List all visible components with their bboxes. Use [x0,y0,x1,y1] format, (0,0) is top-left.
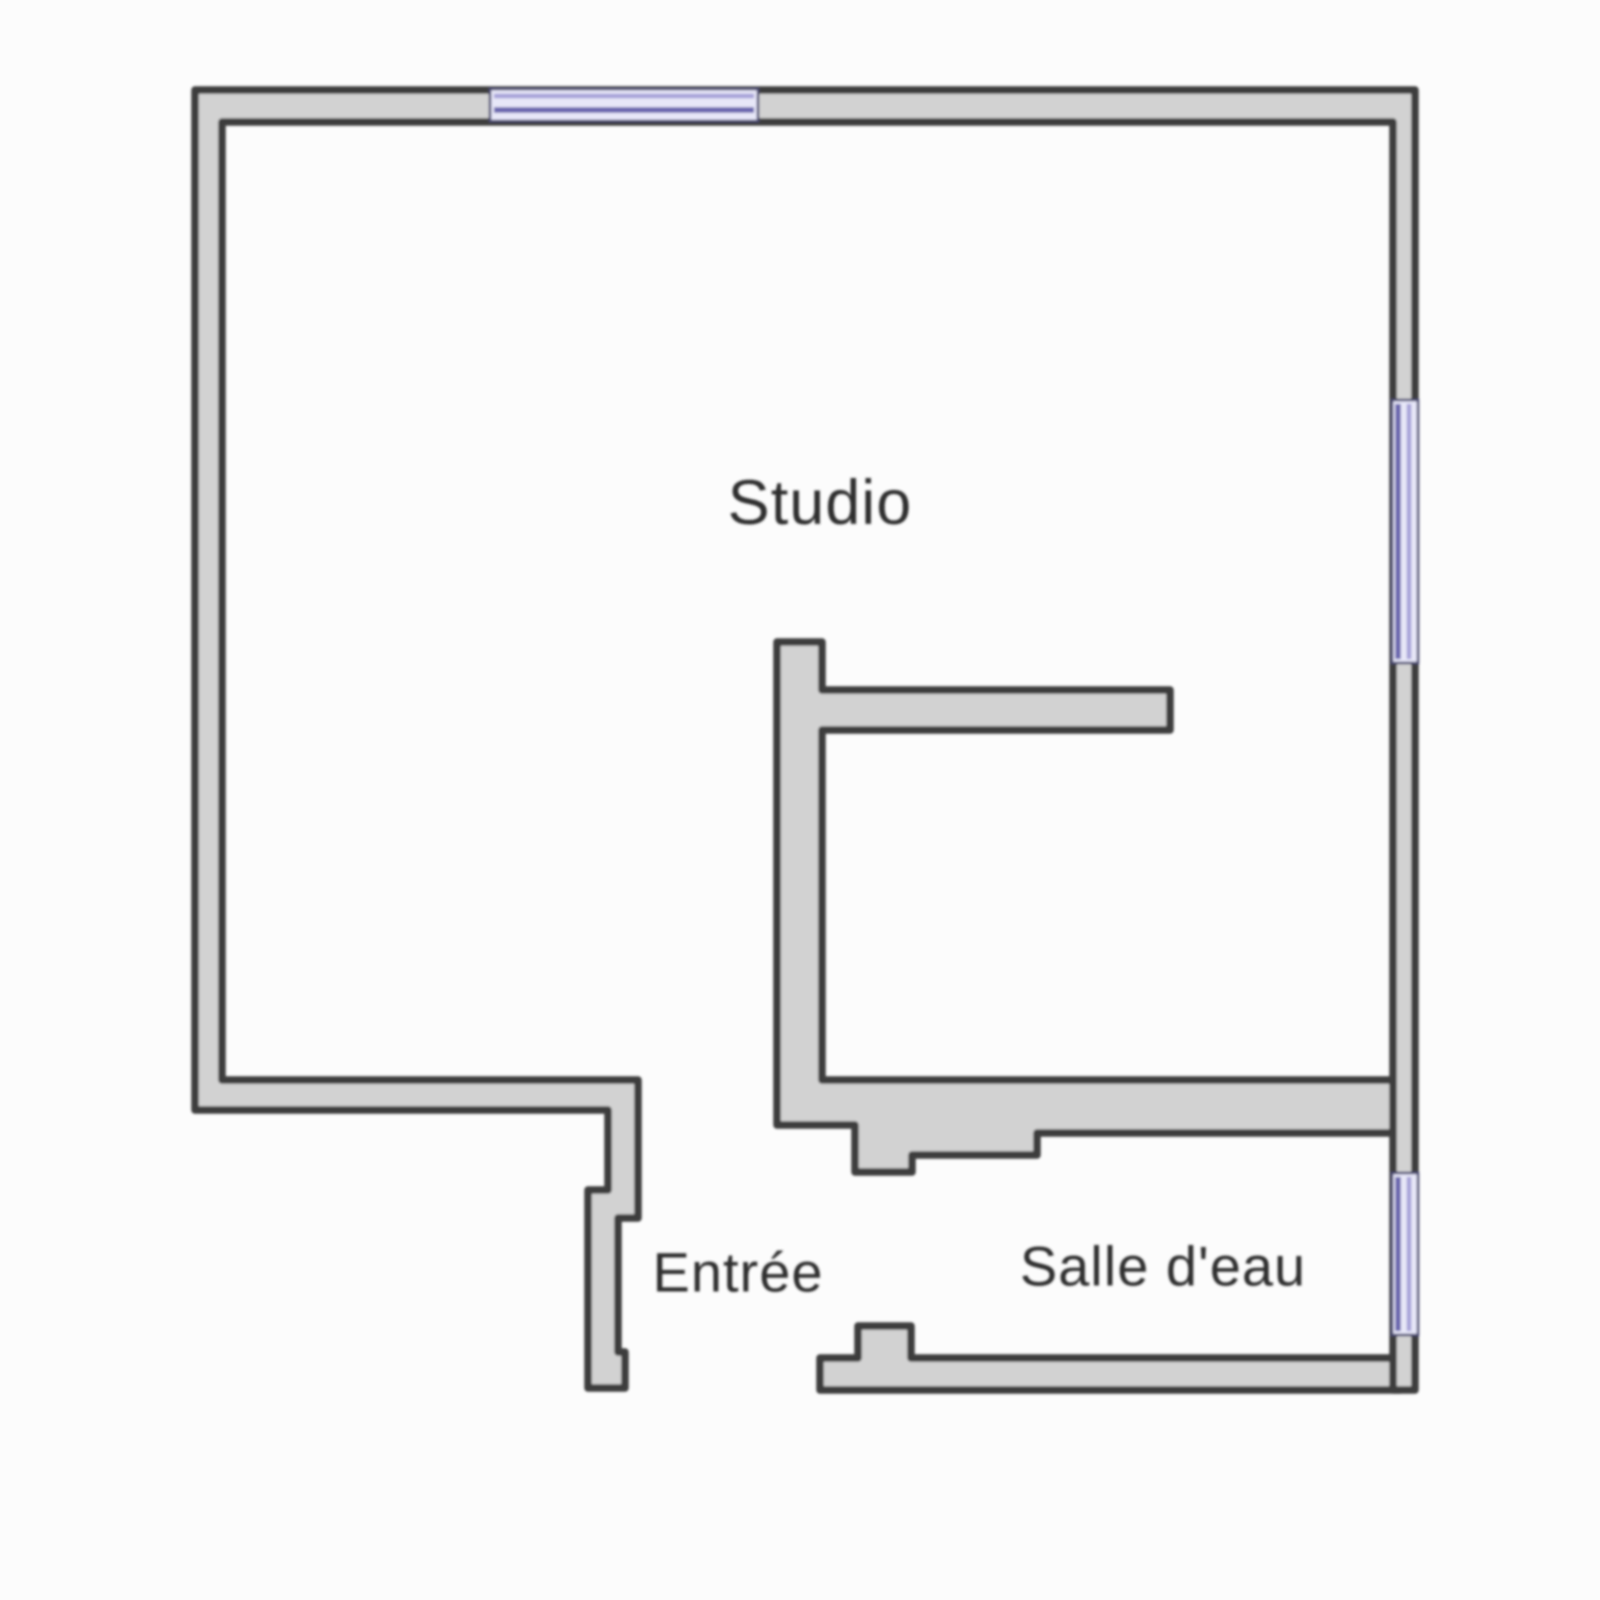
floor-plan-page: Studio Entrée Salle d'eau [0,0,1600,1600]
floor-plan-canvas: Studio Entrée Salle d'eau [0,0,1600,1600]
room-label-studio: Studio [728,468,913,538]
east-window-bathroom [1392,1173,1418,1335]
east-window-studio [1392,400,1418,663]
room-label-entree: Entrée [653,1241,824,1304]
north-window [490,89,758,121]
bathroom-south-wall [820,1326,1400,1390]
interior-partition-walls [777,642,1400,1172]
room-label-salle-deau: Salle d'eau [1020,1235,1306,1298]
